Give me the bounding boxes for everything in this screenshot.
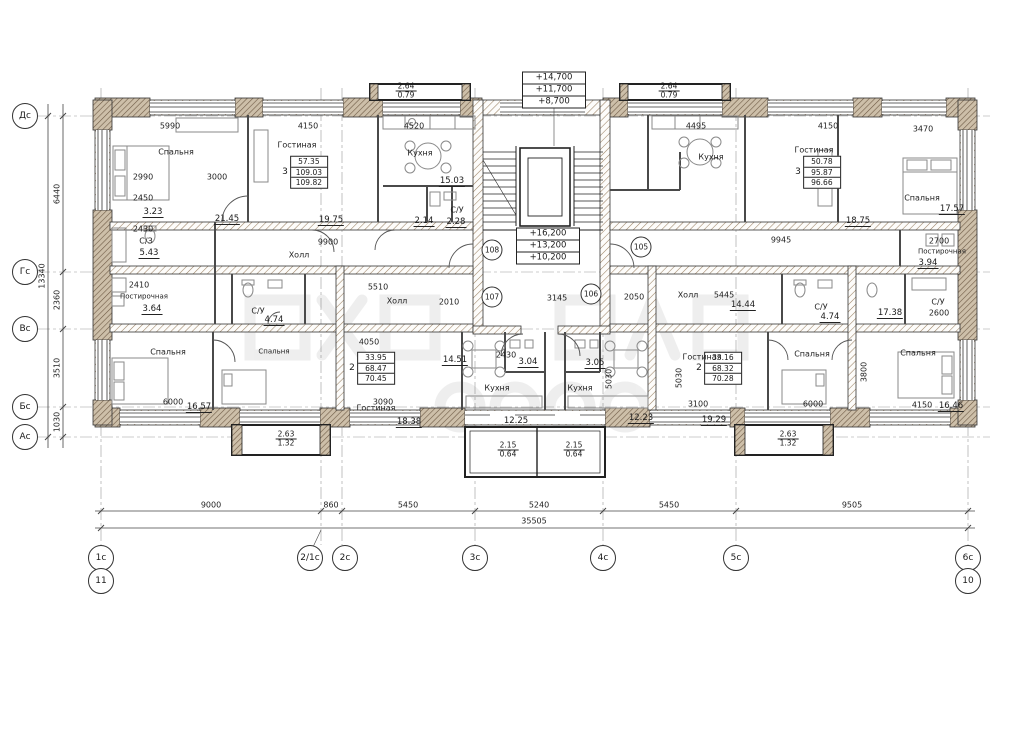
room-bedroom-106: Спальня xyxy=(794,350,830,359)
room-bedroom-br: Спальня xyxy=(900,349,936,358)
axis-circle-2-1с: 2/1с xyxy=(297,545,323,571)
idim-5510: 5510 xyxy=(368,283,388,292)
idim-3800: 3800 xyxy=(860,362,869,382)
idim-4150b: 4150 xyxy=(818,122,838,131)
area-bedroom-tl: 21.45 xyxy=(214,215,240,225)
room-bedroom-107: Спальня xyxy=(258,348,289,357)
dim-5240: 5240 xyxy=(529,501,549,510)
idim-5030a: 5030 xyxy=(605,369,614,389)
idim-2430a: 2430 xyxy=(133,225,153,234)
area-bedroom-br: 16.46 xyxy=(938,402,964,412)
idim-2430b: 2430 xyxy=(496,351,516,360)
room-wc-right: С/У xyxy=(931,298,944,307)
idim-4050: 4050 xyxy=(359,338,379,347)
area-1451: 14.51 xyxy=(442,356,468,366)
unit-number-105: 105 xyxy=(631,237,652,258)
dim-9505: 9505 xyxy=(842,501,862,510)
idim-5445: 5445 xyxy=(714,291,734,300)
room-living-tr: Гостиная xyxy=(795,146,834,155)
idim-4520: 4520 xyxy=(404,122,424,131)
dim-3510: 3510 xyxy=(53,358,62,378)
idim-9900: 9900 xyxy=(318,238,338,247)
stamp-apt-tr: 3 50.7895.8796.66 xyxy=(795,156,841,189)
floor-plan-drawing: Дс Гс Вс Бс Ас 1с 2/1с 2с 3с 4с 5с 6с 11… xyxy=(0,0,1024,731)
room-wc-107: С/У xyxy=(251,307,264,316)
area-wc-106: 4.74 xyxy=(820,313,841,323)
idim-2450: 2450 xyxy=(133,194,153,203)
room-kitchen-106: Кухня xyxy=(567,384,592,393)
idim-6000b: 6000 xyxy=(803,400,823,409)
dim-5450b: 5450 xyxy=(659,501,679,510)
room-sz-left: С/З xyxy=(139,237,152,246)
axis-circle-5с: 5с xyxy=(723,545,749,571)
area-wc-304: 3.04 xyxy=(518,358,539,368)
idim-4495: 4495 xyxy=(686,122,706,131)
area-laundry-right: 3.94 xyxy=(918,259,939,269)
dim-860: 860 xyxy=(323,501,338,510)
axis-circle-Вс: Вс xyxy=(12,316,38,342)
idim-2700: 2700 xyxy=(929,237,949,246)
area-1738: 17.38 xyxy=(877,309,903,319)
area-kitchen-107: 12.25 xyxy=(503,417,529,427)
area-bedroom-tr: 17.57 xyxy=(939,205,965,215)
area-living-106: 19.29 xyxy=(701,416,727,426)
axis-circle-Гс: Гс xyxy=(12,259,38,285)
room-hall-tl: Холл xyxy=(289,251,310,260)
axis-circle-2с: 2с xyxy=(332,545,358,571)
dim-35505-total: 35505 xyxy=(521,517,546,526)
area-storage-323: 3.23 xyxy=(143,208,164,218)
dim-6440: 6440 xyxy=(53,184,62,204)
balcony-label-top-left: 2.640.79 xyxy=(396,83,417,100)
area-kitchen-106: 12.23 xyxy=(628,414,654,424)
axis-circle-4с: 4с xyxy=(590,545,616,571)
idim-3100: 3100 xyxy=(688,400,708,409)
axis-circle-Дс: Дс xyxy=(12,103,38,129)
balcony-label-bottom-left: 2.631.32 xyxy=(276,431,297,448)
area-1444: 14.44 xyxy=(730,301,756,311)
idim-4150a: 4150 xyxy=(298,122,318,131)
room-kitchen-tl: Кухня xyxy=(407,149,432,158)
area-kitchen-tl: 15.03 xyxy=(439,177,465,187)
room-wc-106: С/У xyxy=(814,303,827,312)
room-hall-br: Холл xyxy=(678,291,699,300)
stair-elevation-box: +16,200+13,200+10,200 xyxy=(516,228,580,265)
idim-2010: 2010 xyxy=(439,298,459,307)
idim-5990: 5990 xyxy=(160,122,180,131)
area-wc-305: 3.05 xyxy=(585,359,606,369)
dim-5450a: 5450 xyxy=(398,501,418,510)
balcony-label-bottom-center-right: 2.150.64 xyxy=(564,442,585,459)
axis-circle-3с: 3с xyxy=(462,545,488,571)
axis-circle-10: 10 xyxy=(955,568,981,594)
stamp-apt-tl: 3 57.35109.03109.82 xyxy=(282,156,328,189)
axis-circle-11: 11 xyxy=(88,568,114,594)
roof-elevation-box: +14,700+11,700+8,700 xyxy=(522,72,586,109)
room-hall-bl: Холл xyxy=(387,297,408,306)
dim-13340-total: 13340 xyxy=(38,263,47,288)
area-storage-214: 2.14 xyxy=(414,217,435,227)
idim-2990: 2990 xyxy=(133,173,153,182)
idim-2050: 2050 xyxy=(624,293,644,302)
axis-circle-Ас: Ас xyxy=(12,424,38,450)
idim-9945: 9945 xyxy=(771,236,791,245)
room-bedroom-bl: Спальня xyxy=(150,348,186,357)
area-bedroom-bl: 16.57 xyxy=(186,403,212,413)
plan-graphics xyxy=(0,0,1024,731)
idim-4150c: 4150 xyxy=(912,401,932,410)
area-living-tl: 19.75 xyxy=(318,216,344,226)
room-bedroom-tl: Спальня xyxy=(158,148,194,157)
room-kitchen-107: Кухня xyxy=(484,384,509,393)
room-laundry-left: Постирочная xyxy=(120,293,168,302)
room-kitchen-tr: Кухня xyxy=(698,153,723,162)
area-living-tr: 18.75 xyxy=(845,217,871,227)
idim-3145: 3145 xyxy=(547,294,567,303)
room-bedroom-tr: Спальня xyxy=(904,194,940,203)
dim-2360: 2360 xyxy=(53,290,62,310)
idim-3090: 3090 xyxy=(373,398,393,407)
idim-2410: 2410 xyxy=(129,281,149,290)
area-laundry-left: 3.64 xyxy=(142,305,163,315)
room-wc-top-center: С/У xyxy=(450,206,463,215)
unit-number-107: 107 xyxy=(482,287,503,308)
unit-number-106: 106 xyxy=(581,284,602,305)
dim-9000: 9000 xyxy=(201,501,221,510)
idim-3470: 3470 xyxy=(913,125,933,134)
room-laundry-right: Постирочная xyxy=(918,248,966,257)
balcony-label-bottom-right: 2.631.32 xyxy=(778,431,799,448)
unit-number-108: 108 xyxy=(482,240,503,261)
balcony-label-top-right: 2.640.79 xyxy=(659,83,680,100)
balcony-label-bottom-center-left: 2.150.64 xyxy=(498,442,519,459)
idim-2600: 2600 xyxy=(929,309,949,318)
idim-5030b: 5030 xyxy=(675,368,684,388)
room-living-106: Гостиная xyxy=(683,353,722,362)
area-living-107: 18.38 xyxy=(396,418,422,428)
dim-1030: 1030 xyxy=(53,412,62,432)
area-wc-107: 4.74 xyxy=(264,316,285,326)
room-living-tl: Гостиная xyxy=(278,141,317,150)
area-sz-left: 5.43 xyxy=(139,249,160,259)
idim-6000a: 6000 xyxy=(163,398,183,407)
stair-core xyxy=(483,146,603,230)
area-wc-top-center: 2.28 xyxy=(446,218,467,228)
axis-circle-Бс: Бс xyxy=(12,394,38,420)
stamp-apt-bl: 2 33.9568.4770.45 xyxy=(349,352,395,385)
idim-3000: 3000 xyxy=(207,173,227,182)
